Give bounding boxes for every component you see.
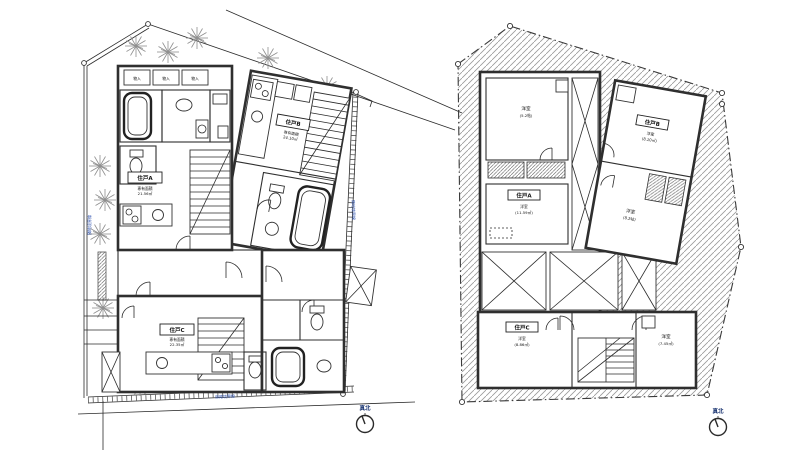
unit-a2-name: 洋室 [520, 204, 528, 209]
storage-label-1: 物入 [133, 76, 141, 81]
room-se-name: 洋室 [661, 333, 671, 340]
room-se-area: (7.45㎡) [658, 341, 674, 346]
storage-label-2: 物入 [162, 76, 170, 81]
unit-c2-name: 洋室 [518, 336, 526, 341]
boundary-label-left: 隣地境界線 [86, 215, 92, 235]
unit-a-kitchen [120, 204, 172, 226]
unit-c2-area: (8.86㎡) [514, 342, 530, 347]
exterior-shaft [102, 352, 120, 392]
roof-band [482, 252, 656, 310]
left-floor-plan: 道路境界線 隣地境界線 隣地境界線 道路境界線 [78, 10, 462, 450]
right-floor-plan: 洋室 (5.2帖) 住戸A 洋室 (11.59㎡) [455, 23, 743, 435]
bottom-band: 住戸C 洋室 (8.86㎡) 洋室 (7.45㎡) [478, 312, 696, 388]
right-building: 洋室 (5.2帖) 住戸A 洋室 (11.59㎡) [478, 72, 706, 388]
unit-a2-label: 住戸A [516, 192, 532, 200]
unit-c2-label: 住戸C [514, 324, 529, 332]
storage-label-3: 物入 [191, 76, 199, 81]
boundary-label-bottom: 道路境界線 [215, 393, 235, 400]
unit-a-stairs [190, 150, 230, 234]
unit-b-wing: 住戸B 専有面積 24.10㎡ [221, 71, 352, 260]
unit-c-area-line2: 22.35㎡ [170, 342, 185, 347]
unit-a-block: 物入 物入 物入 [118, 66, 232, 250]
left-building: 住戸B 専有面積 24.10㎡ 物入 物入 物入 [84, 66, 376, 392]
unit-a-area-line2: 21.56㎡ [138, 191, 153, 196]
north-arrow-icon: 真北 [710, 407, 727, 436]
storage-row: 物入 物入 物入 [124, 70, 208, 85]
washbasin [317, 360, 331, 372]
north-label-left: 真北 [359, 404, 371, 412]
east-wc [310, 306, 324, 330]
washbasin [176, 99, 192, 111]
room-nw-name: 洋室 [521, 105, 531, 112]
north-arrow-icon: 真北 [357, 404, 374, 433]
floor-plan-drawing: 道路境界線 隣地境界線 隣地境界線 道路境界線 [0, 0, 800, 450]
north-label-right: 真北 [712, 407, 724, 415]
unit-c-block: 住戸C 専有面積 22.35㎡ [118, 296, 262, 392]
unit-a2-area: (11.59㎡) [515, 210, 533, 215]
room-nw-area: (5.2帖) [520, 113, 533, 118]
unit-c-kitchen [146, 352, 232, 374]
unit-a-label: 住戸A [137, 174, 153, 182]
exterior-shaft-east [346, 266, 377, 305]
unit-c-label: 住戸C [169, 326, 184, 334]
boundary-label-right: 隣地境界線 [351, 200, 358, 220]
